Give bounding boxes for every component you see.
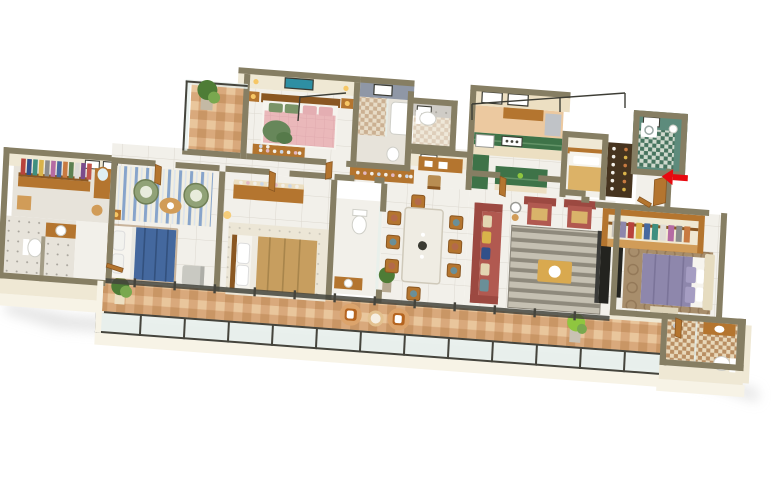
wall-art xyxy=(285,78,314,90)
balcony-master-floor xyxy=(188,83,249,153)
pillow xyxy=(237,243,250,264)
fridge xyxy=(544,113,561,136)
pillow-green xyxy=(269,103,283,113)
pillow-pink xyxy=(303,105,317,115)
door-leaf xyxy=(499,176,506,196)
washing-machine xyxy=(641,123,658,138)
desk-chair xyxy=(427,175,441,188)
maid-room-furniture xyxy=(566,147,606,192)
pillow-green xyxy=(285,104,299,114)
hamper xyxy=(17,195,32,210)
door-leaf xyxy=(155,164,162,184)
living-furniture xyxy=(470,192,614,314)
entrance-door xyxy=(653,176,667,207)
microwave xyxy=(476,134,495,147)
door-leaf xyxy=(269,171,276,191)
floor-lamp xyxy=(510,202,521,213)
toilet xyxy=(352,215,367,234)
geyser xyxy=(669,125,677,134)
door-leaf xyxy=(675,318,682,338)
pillow xyxy=(236,265,249,286)
floor-plan-stage xyxy=(0,0,780,490)
window xyxy=(374,85,393,96)
pillow xyxy=(686,267,697,284)
floor-plan-render xyxy=(0,0,780,490)
shelf-unit xyxy=(606,142,635,198)
pillow-pink xyxy=(319,106,333,116)
door-leaf xyxy=(325,161,332,179)
sink xyxy=(56,225,67,236)
toilet xyxy=(387,147,400,162)
pantry-furniture xyxy=(606,142,635,198)
pillow xyxy=(697,269,705,284)
pillow xyxy=(696,287,704,302)
pillow xyxy=(113,231,125,251)
pillow xyxy=(685,287,696,304)
vanity-mirror xyxy=(96,167,109,182)
